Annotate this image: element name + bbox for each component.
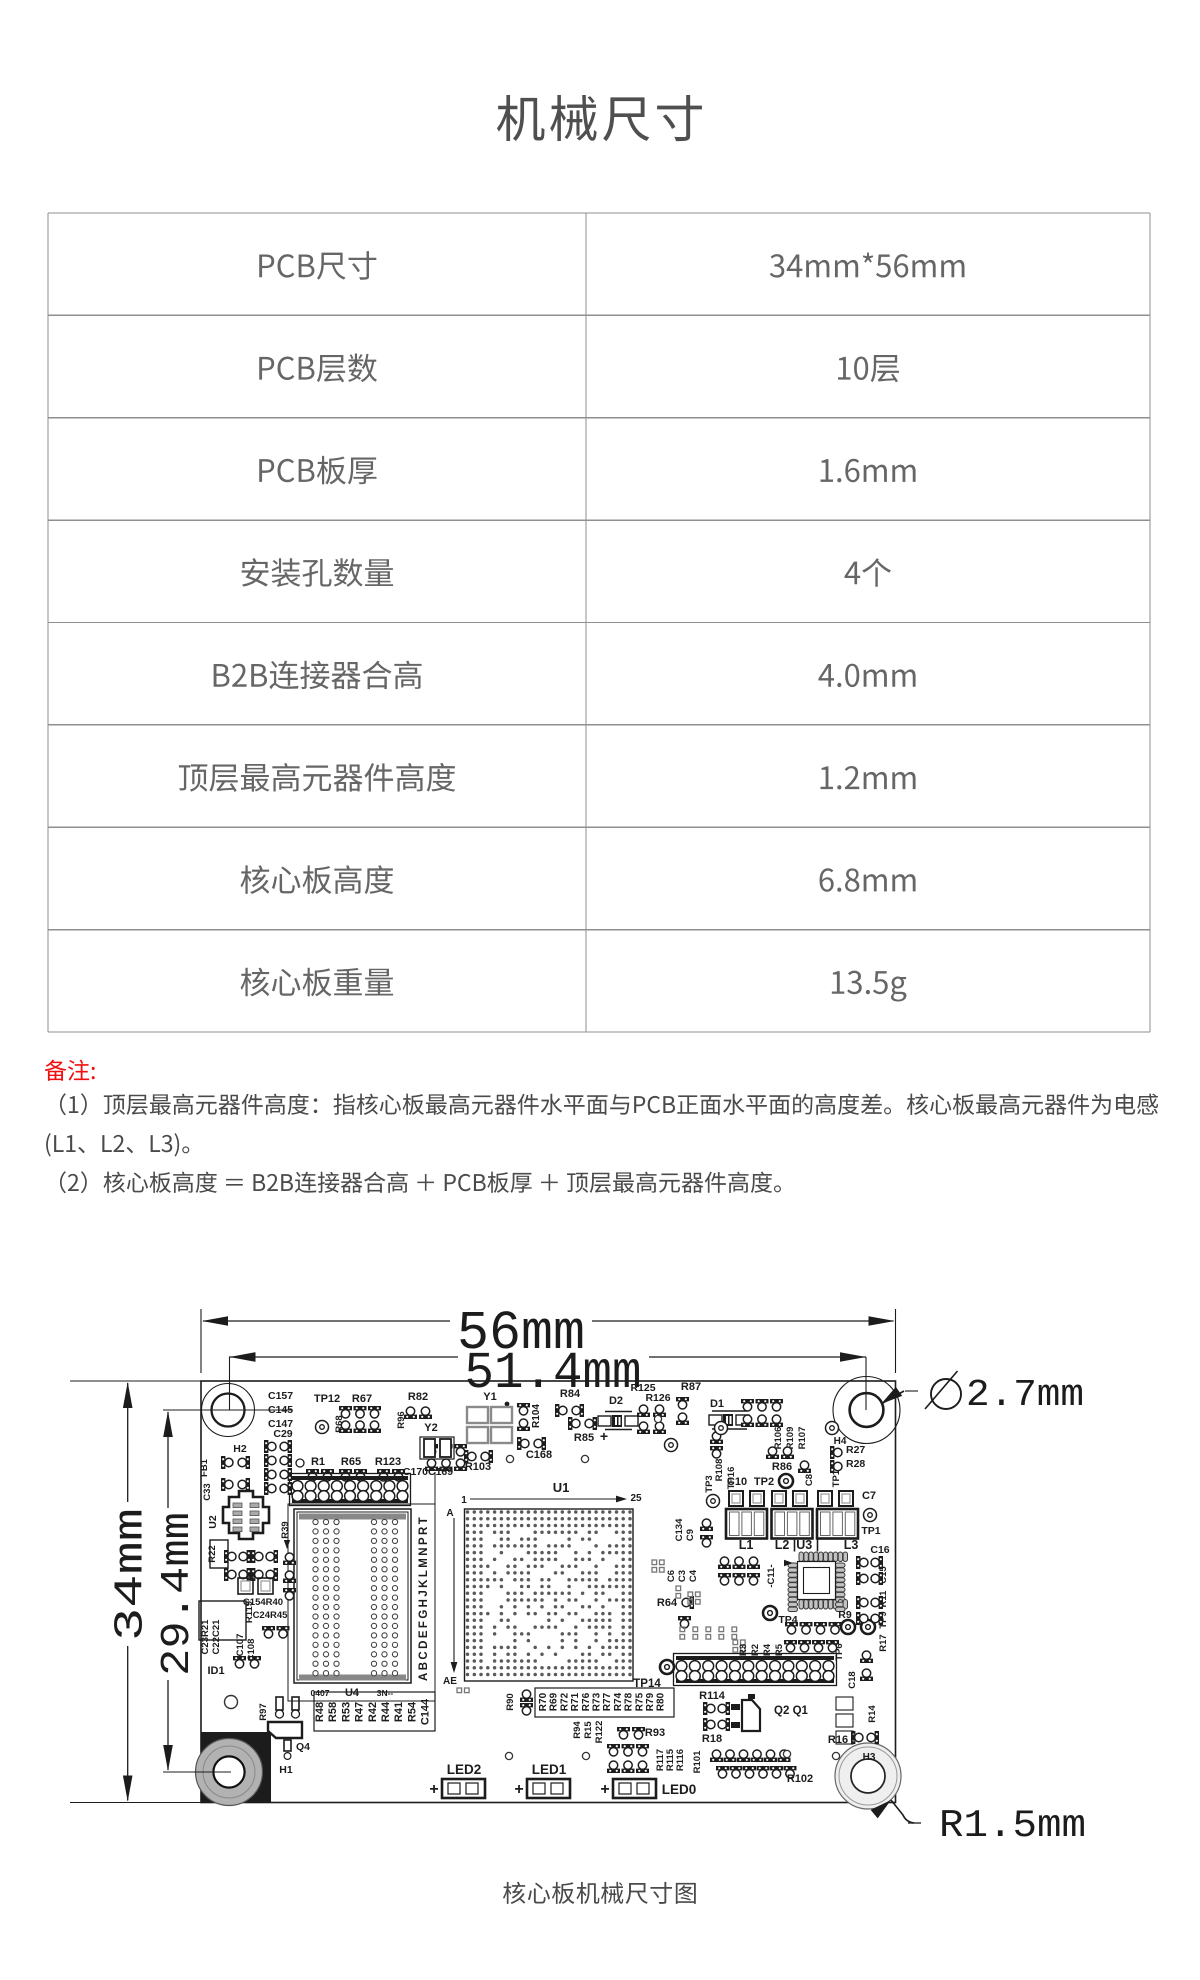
svg-text:R122: R122: [594, 1721, 605, 1744]
svg-text:R3: R3: [738, 1644, 749, 1656]
svg-text:R58: R58: [327, 1702, 339, 1722]
svg-text:R123: R123: [375, 1456, 401, 1468]
svg-text:C4: C4: [688, 1569, 699, 1582]
svg-text:C9: C9: [685, 1529, 696, 1541]
svg-text:C157: C157: [268, 1390, 293, 1402]
svg-text:C18: C18: [847, 1671, 858, 1688]
svg-text:L3: L3: [844, 1538, 859, 1552]
svg-text:H4: H4: [834, 1436, 847, 1447]
svg-text:R39: R39: [280, 1521, 291, 1538]
svg-text:R42: R42: [367, 1702, 379, 1722]
svg-text:C33: C33: [202, 1483, 213, 1500]
svg-text:R28: R28: [846, 1458, 865, 1470]
svg-text:R53: R53: [340, 1702, 352, 1722]
svg-text:R67: R67: [352, 1393, 372, 1405]
svg-text:R75: R75: [634, 1692, 645, 1711]
svg-text:R87: R87: [681, 1381, 701, 1393]
svg-text:R86: R86: [772, 1461, 792, 1473]
svg-text:R65: R65: [341, 1456, 361, 1468]
svg-text:R18: R18: [702, 1733, 722, 1745]
svg-text:+: +: [514, 1781, 523, 1798]
svg-text:TP6: TP6: [834, 1643, 845, 1660]
svg-text:L2: L2: [775, 1538, 790, 1552]
svg-text:C24R45: C24R45: [253, 1610, 289, 1621]
svg-text:R1: R1: [311, 1456, 325, 1468]
svg-text:-C11-: -C11-: [766, 1564, 777, 1587]
svg-text:2.7mm: 2.7mm: [966, 1374, 1084, 1417]
svg-text:R74: R74: [613, 1692, 624, 1711]
svg-text:R1.5mm: R1.5mm: [939, 1804, 1086, 1848]
svg-text:R85: R85: [574, 1432, 594, 1444]
svg-text:R80: R80: [656, 1692, 667, 1711]
svg-text:C3: C3: [677, 1570, 688, 1582]
svg-text:C8: C8: [804, 1474, 815, 1486]
svg-text:R126: R126: [645, 1392, 670, 1404]
svg-text:|U3 |: |U3 |: [793, 1538, 819, 1552]
svg-text:1: 1: [461, 1495, 467, 1506]
svg-text:R69: R69: [549, 1692, 560, 1711]
svg-text:R107: R107: [797, 1427, 808, 1450]
svg-text:R27: R27: [846, 1444, 865, 1456]
svg-text:LED2: LED2: [447, 1762, 482, 1777]
svg-text:+: +: [600, 1781, 609, 1798]
svg-text:C170C169: C170C169: [403, 1466, 453, 1478]
svg-text:C168: C168: [526, 1449, 552, 1461]
svg-text:R108: R108: [714, 1459, 725, 1482]
svg-text:3N--: 3N--: [377, 1688, 394, 1698]
svg-text:R94: R94: [572, 1721, 583, 1739]
svg-text:R116: R116: [675, 1749, 686, 1771]
svg-text:R106: R106: [773, 1427, 784, 1450]
svg-text:C10: C10: [727, 1476, 747, 1488]
svg-text:U1: U1: [553, 1480, 570, 1495]
svg-text:R2: R2: [750, 1644, 761, 1656]
svg-text:R72: R72: [559, 1692, 570, 1711]
svg-text:R79: R79: [645, 1692, 656, 1711]
svg-text:R70: R70: [538, 1692, 549, 1711]
svg-text:R93: R93: [645, 1727, 665, 1739]
svg-text:Q2 Q1: Q2 Q1: [774, 1705, 808, 1717]
svg-text:C147: C147: [268, 1418, 293, 1430]
svg-text:C6: C6: [666, 1570, 677, 1582]
svg-text:+: +: [429, 1781, 438, 1798]
svg-text:H2: H2: [233, 1443, 247, 1455]
svg-text:R114: R114: [699, 1690, 726, 1702]
svg-text:U2: U2: [207, 1515, 219, 1529]
svg-text:R47: R47: [354, 1702, 366, 1722]
svg-text:C7: C7: [862, 1490, 876, 1502]
svg-text:H3: H3: [863, 1752, 876, 1763]
svg-text:R77: R77: [602, 1692, 613, 1711]
svg-text:R97: R97: [258, 1703, 269, 1720]
svg-text:ABCDEFGHJKLMNPRT: ABCDEFGHJKLMNPRT: [418, 1515, 430, 1681]
svg-text:C134: C134: [674, 1518, 685, 1541]
svg-text:25: 25: [630, 1493, 642, 1504]
svg-text:C144: C144: [420, 1698, 432, 1725]
svg-text:R41: R41: [393, 1702, 405, 1722]
svg-text:R90: R90: [505, 1693, 516, 1710]
svg-text:U4: U4: [345, 1687, 360, 1699]
svg-text:L1: L1: [739, 1538, 754, 1552]
svg-text:R102: R102: [787, 1773, 813, 1785]
svg-text:34mm: 34mm: [109, 1508, 155, 1641]
svg-text:+: +: [600, 1428, 608, 1444]
svg-text:R22: R22: [207, 1545, 218, 1562]
svg-text:R14: R14: [867, 1705, 878, 1723]
svg-text:R5: R5: [774, 1643, 785, 1656]
svg-text:C22C21: C22C21: [211, 1619, 222, 1655]
svg-text:R15: R15: [583, 1721, 594, 1739]
svg-text:TP3: TP3: [704, 1475, 715, 1492]
svg-text:A: A: [446, 1508, 453, 1519]
svg-text:C145: C145: [268, 1404, 293, 1416]
svg-text:FB1: FB1: [199, 1458, 210, 1477]
svg-text:Y1: Y1: [483, 1391, 496, 1403]
svg-text:R101: R101: [692, 1750, 703, 1773]
svg-text:C107: C107: [235, 1634, 246, 1657]
svg-text:R78: R78: [624, 1692, 635, 1711]
svg-text:R48: R48: [314, 1702, 326, 1722]
svg-text:R84: R84: [560, 1388, 581, 1400]
svg-text:R109: R109: [785, 1427, 796, 1450]
svg-text:Y2: Y2: [424, 1422, 437, 1434]
svg-text:R76: R76: [581, 1692, 592, 1711]
svg-text:TP12: TP12: [314, 1393, 340, 1405]
svg-text:R73: R73: [592, 1692, 603, 1711]
svg-text:ID1: ID1: [207, 1665, 224, 1677]
svg-text:29.4mm: 29.4mm: [155, 1512, 201, 1676]
svg-text:R104: R104: [531, 1404, 542, 1428]
svg-text:R71: R71: [570, 1692, 581, 1711]
svg-text:C23R21: C23R21: [200, 1619, 211, 1655]
svg-text:R44: R44: [380, 1701, 392, 1722]
svg-text:AE: AE: [443, 1676, 457, 1687]
svg-text:H1: H1: [279, 1764, 293, 1776]
svg-text:R64: R64: [657, 1597, 678, 1609]
svg-text:R103: R103: [465, 1461, 491, 1473]
svg-text:LED0: LED0: [662, 1782, 697, 1797]
svg-text:Q4: Q4: [296, 1741, 310, 1753]
svg-text:TP1: TP1: [861, 1525, 880, 1537]
svg-text:C154R40: C154R40: [243, 1597, 283, 1608]
svg-text:R54: R54: [406, 1701, 418, 1722]
svg-text:C16: C16: [870, 1544, 889, 1556]
svg-text:TP2: TP2: [754, 1476, 774, 1488]
svg-text:R4: R4: [762, 1643, 773, 1656]
svg-text:LED1: LED1: [532, 1762, 567, 1777]
svg-text:R17: R17: [878, 1634, 889, 1651]
svg-text:D1: D1: [710, 1398, 724, 1410]
svg-text:R96: R96: [396, 1411, 407, 1428]
svg-text:R82: R82: [408, 1391, 428, 1403]
svg-text:D2: D2: [609, 1395, 623, 1407]
